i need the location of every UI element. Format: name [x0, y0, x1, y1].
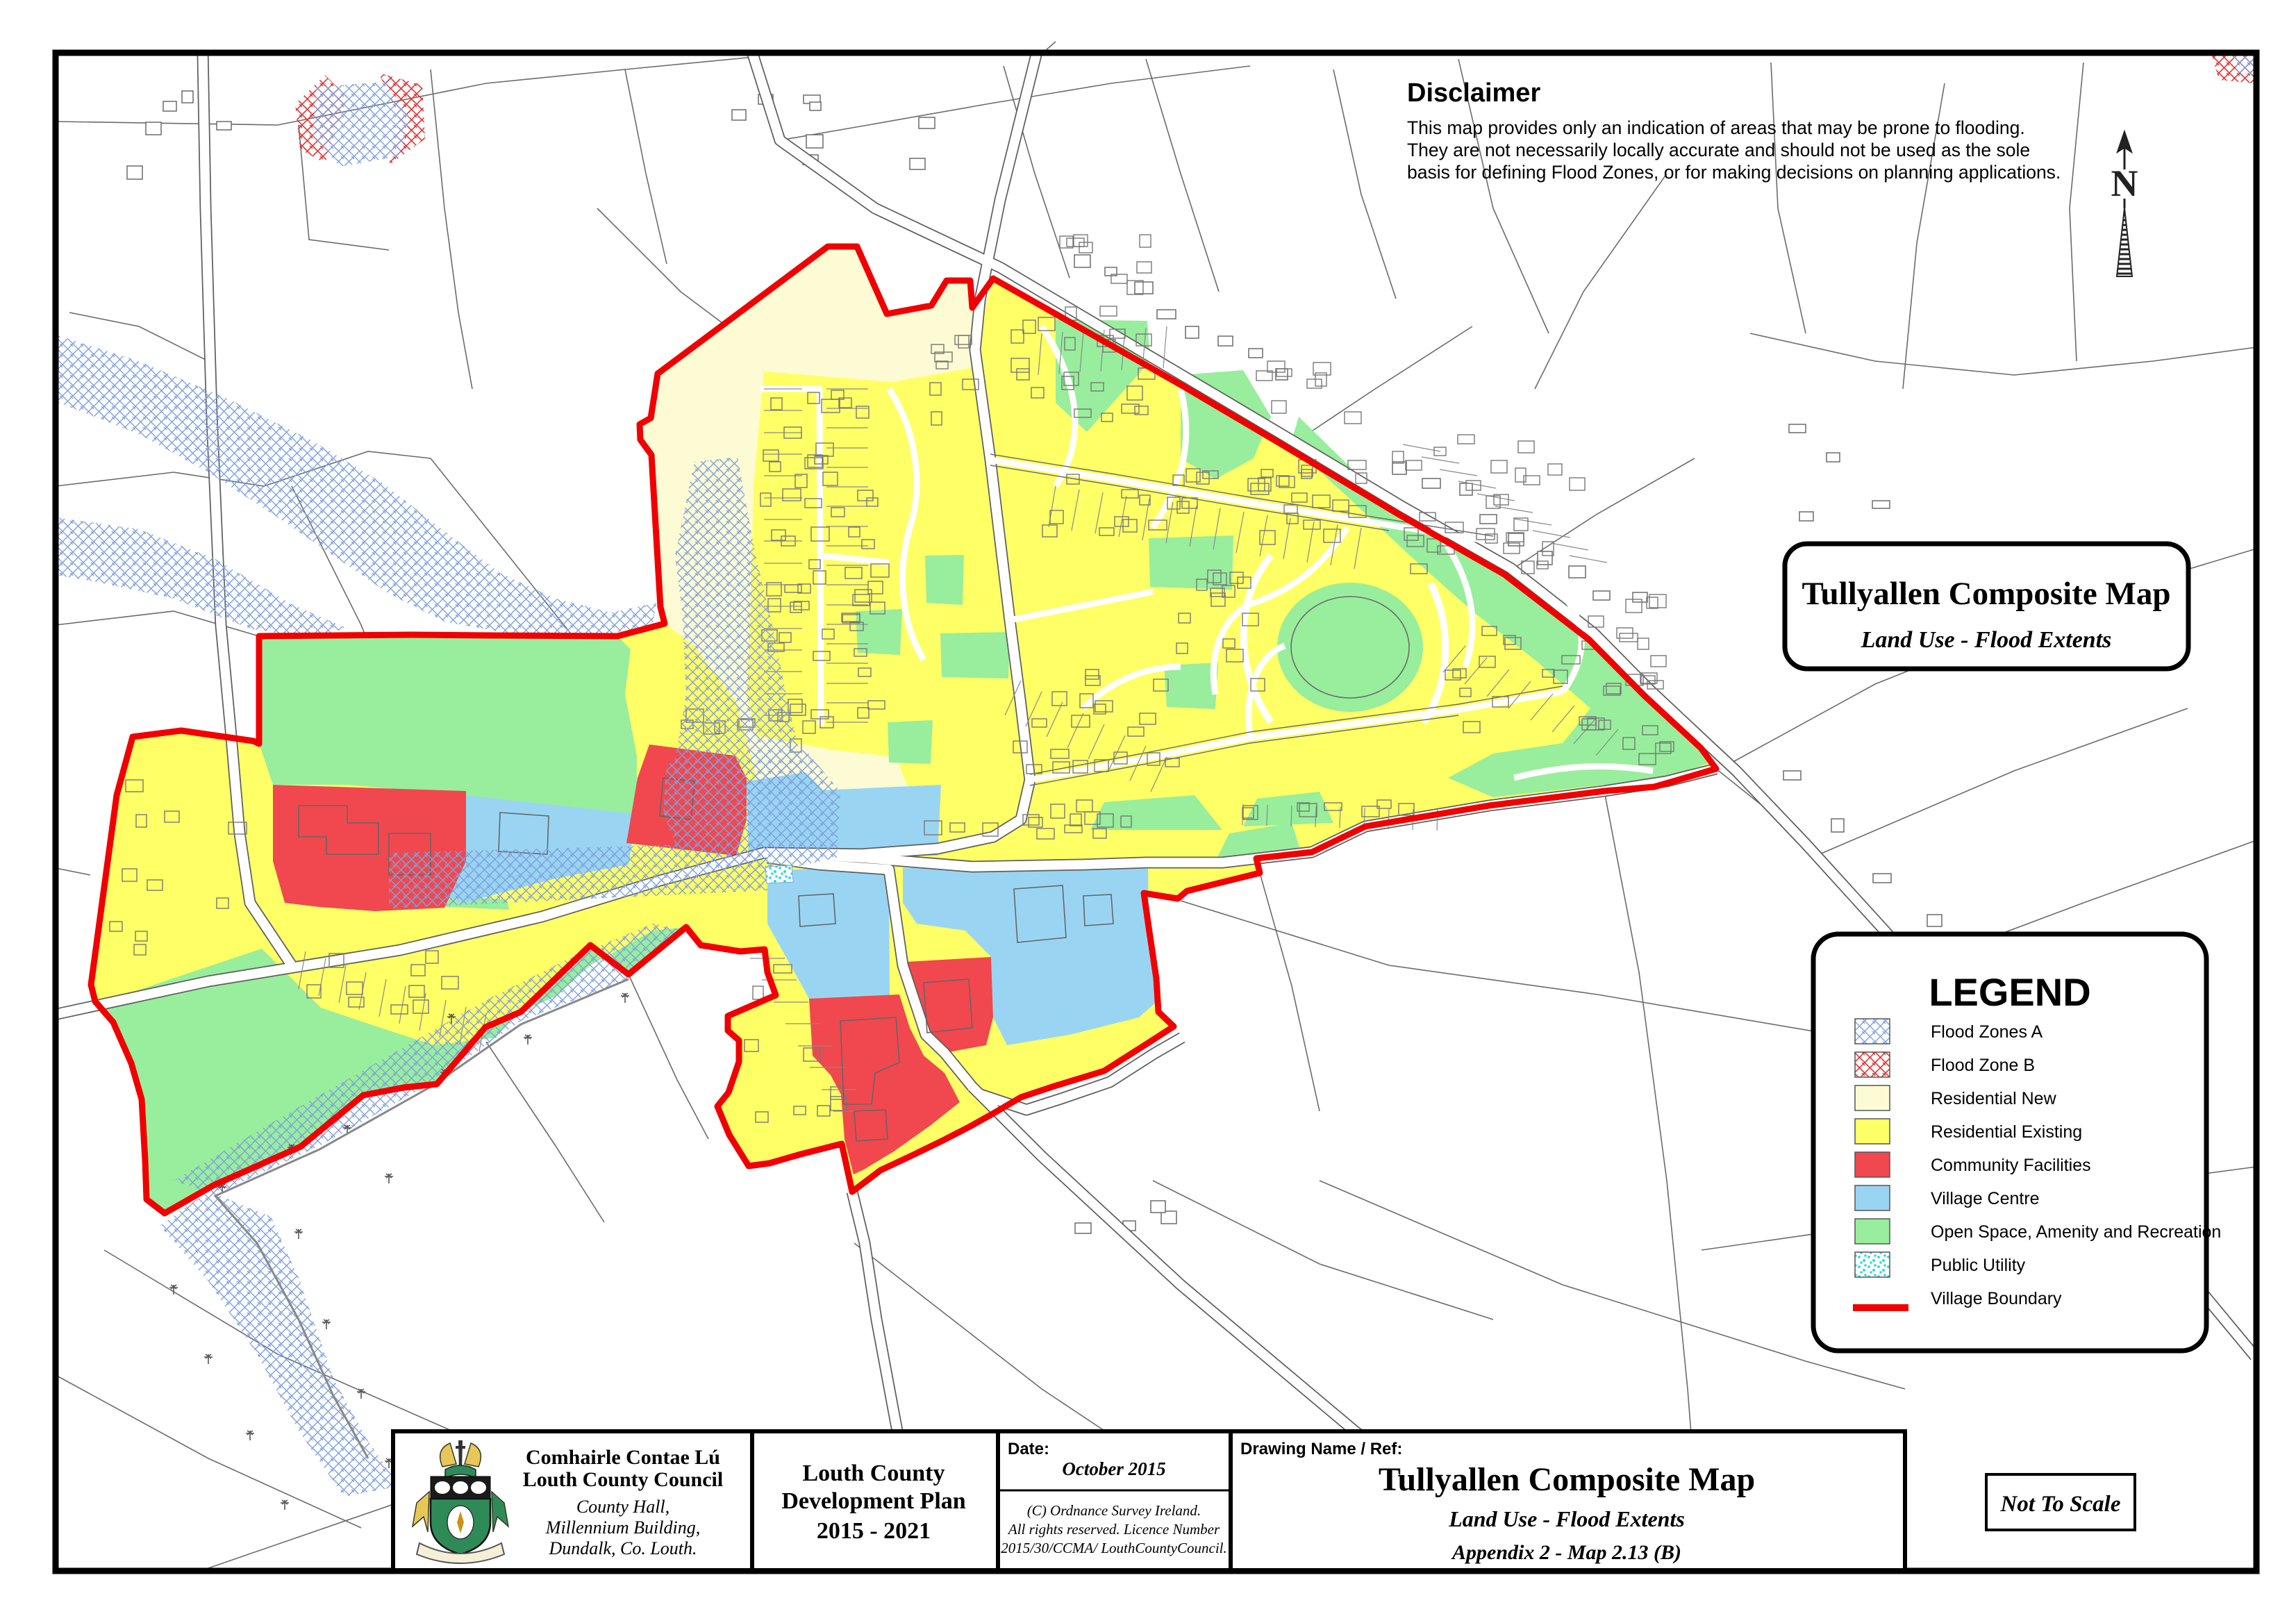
svg-text:They are not necessarily local: They are not necessarily locally accurat…	[1407, 140, 2030, 160]
svg-text:Village Boundary: Village Boundary	[1931, 1289, 2062, 1308]
svg-text:County Hall,: County Hall,	[576, 1497, 669, 1517]
svg-text:Dundalk, Co. Louth.: Dundalk, Co. Louth.	[548, 1538, 697, 1558]
svg-text:(C) Ordnance Survey Ireland.: (C) Ordnance Survey Ireland.	[1027, 1502, 1201, 1519]
svg-text:Flood Zone B: Flood Zone B	[1931, 1056, 2035, 1075]
svg-text:Drawing Name / Ref:: Drawing Name / Ref:	[1240, 1440, 1402, 1458]
svg-text:2015 - 2021: 2015 - 2021	[817, 1518, 931, 1544]
svg-text:Date:: Date:	[1008, 1440, 1049, 1458]
svg-text:Not To Scale: Not To Scale	[2000, 1492, 2121, 1517]
svg-text:Village Centre: Village Centre	[1931, 1189, 2040, 1208]
svg-text:Millennium Building,: Millennium Building,	[545, 1517, 700, 1538]
svg-text:This map provides only an indi: This map provides only an indication of …	[1407, 117, 2025, 138]
svg-text:Appendix 2 - Map 2.13 (B): Appendix 2 - Map 2.13 (B)	[1451, 1541, 1681, 1564]
svg-text:Public Utility: Public Utility	[1931, 1256, 2026, 1275]
svg-text:Residential New: Residential New	[1931, 1089, 2057, 1108]
svg-text:Comhairle Contae Lú: Comhairle Contae Lú	[526, 1446, 720, 1469]
svg-text:Land Use - Flood Extents: Land Use - Flood Extents	[1448, 1506, 1685, 1531]
svg-text:N: N	[2111, 163, 2138, 204]
svg-text:Louth County: Louth County	[802, 1460, 945, 1486]
svg-text:2015/30/CCMA/ LouthCountyCounc: 2015/30/CCMA/ LouthCountyCouncil.	[1001, 1540, 1227, 1556]
svg-text:LEGEND: LEGEND	[1929, 970, 2090, 1014]
svg-text:Flood Zones A: Flood Zones A	[1931, 1022, 2043, 1042]
svg-text:Community Facilities: Community Facilities	[1931, 1156, 2091, 1175]
svg-text:All rights reserved. Licence N: All rights reserved. Licence Number	[1007, 1521, 1220, 1538]
svg-text:Open Space, Amenity and Recrea: Open Space, Amenity and Recreation	[1931, 1222, 2221, 1242]
svg-text:Tullyallen Composite Map: Tullyallen Composite Map	[1379, 1461, 1755, 1498]
svg-text:October 2015: October 2015	[1062, 1458, 1165, 1479]
svg-text:Disclaimer: Disclaimer	[1407, 78, 1540, 108]
svg-text:Land Use - Flood Extents: Land Use - Flood Extents	[1861, 627, 2112, 653]
svg-text:Tullyallen Composite Map: Tullyallen Composite Map	[1802, 576, 2171, 612]
svg-text:Louth County Council: Louth County Council	[523, 1468, 723, 1491]
svg-text:Residential Existing: Residential Existing	[1931, 1122, 2082, 1142]
svg-text:basis for defining Flood Zones: basis for defining Flood Zones, or for m…	[1407, 162, 2061, 183]
svg-text:Development Plan: Development Plan	[781, 1488, 965, 1514]
